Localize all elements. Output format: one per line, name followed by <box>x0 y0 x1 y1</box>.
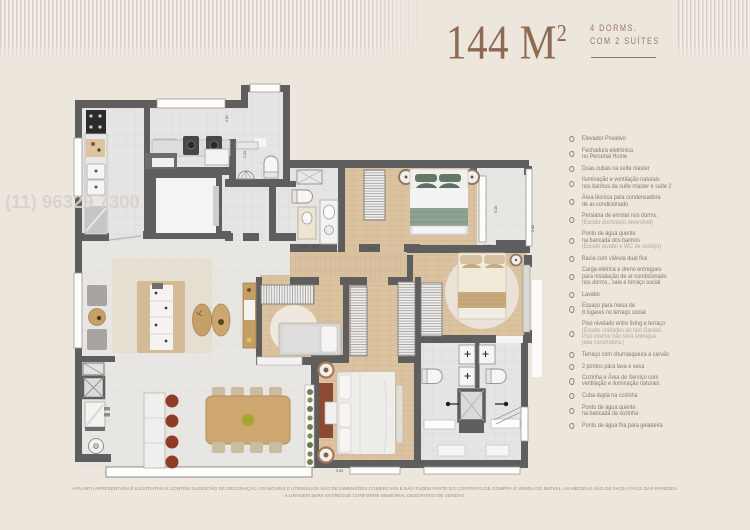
svg-text:3.03: 3.03 <box>336 469 343 473</box>
svg-text:23: 23 <box>516 461 520 465</box>
svg-text:5.20: 5.20 <box>301 245 308 249</box>
svg-text:4.04: 4.04 <box>225 115 229 122</box>
svg-text:1.33: 1.33 <box>243 151 247 158</box>
svg-text:5.37: 5.37 <box>464 338 471 342</box>
svg-text:1.70: 1.70 <box>432 338 439 342</box>
svg-text:2.82: 2.82 <box>531 225 535 232</box>
svg-text:4.37: 4.37 <box>312 245 319 249</box>
svg-text:5.10: 5.10 <box>494 206 498 213</box>
svg-text:3.03: 3.03 <box>368 247 375 251</box>
svg-text:3.18: 3.18 <box>484 244 491 248</box>
svg-text:3.03: 3.03 <box>416 461 423 465</box>
